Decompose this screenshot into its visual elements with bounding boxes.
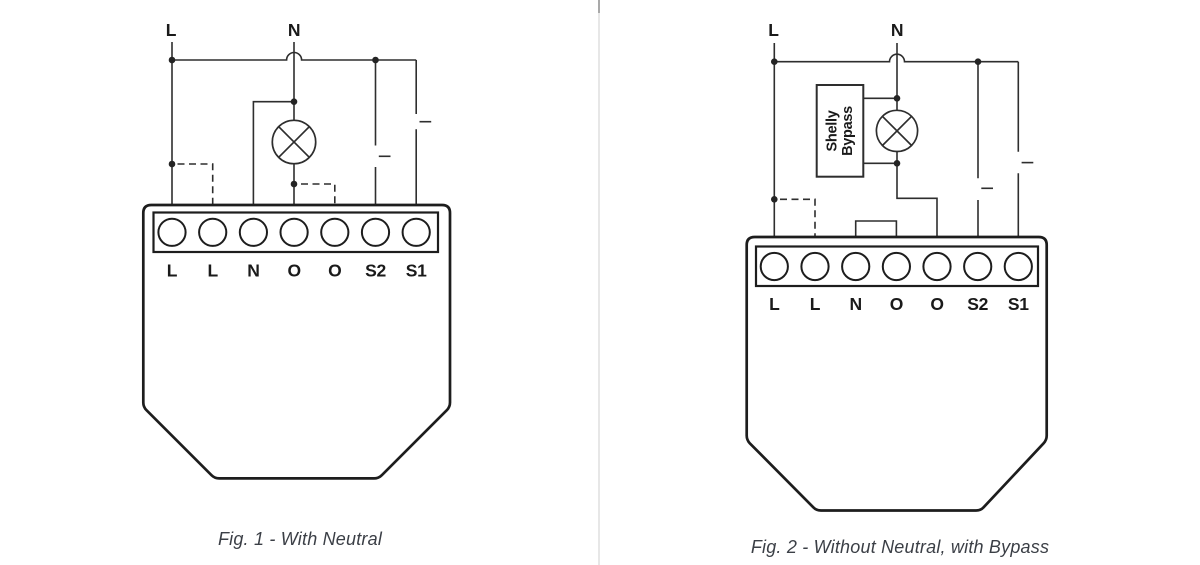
- terminal-hole: [362, 219, 389, 246]
- fig1-junction-dots: [169, 57, 379, 188]
- figure-1-caption: Fig. 1 - With Neutral: [0, 529, 600, 550]
- lamp-cross: [279, 127, 310, 158]
- terminal-label: O: [930, 294, 943, 314]
- terminal-hole: [801, 253, 828, 280]
- terminal-hole: [403, 219, 430, 246]
- supply-label-l: L: [166, 20, 177, 40]
- terminal-hole: [240, 219, 267, 246]
- terminal-hole: [199, 219, 226, 246]
- junction-dot: [291, 181, 298, 188]
- terminal-label: L: [769, 294, 780, 314]
- lamp-icon: [876, 110, 917, 151]
- terminal-label: S2: [365, 261, 386, 281]
- fig2-wires: [774, 43, 1033, 237]
- neutral-branch-wire: [253, 102, 294, 205]
- figure-2-caption: Fig. 2 - Without Neutral, with Bypass: [600, 537, 1200, 558]
- junction-dot: [771, 196, 778, 203]
- terminal-hole: [321, 219, 348, 246]
- switch-s2-icon: [978, 62, 993, 237]
- figure-1-diagram: L N L L N O O S2 S1: [0, 0, 600, 565]
- switch-s1-icon: [1018, 62, 1033, 237]
- terminal-hole: [1005, 253, 1032, 280]
- junction-dot: [771, 58, 778, 65]
- terminal-bridge-wire: [856, 221, 897, 237]
- junction-dot: [169, 161, 176, 168]
- switch-s1-icon: [416, 60, 431, 205]
- terminal-label: L: [810, 294, 821, 314]
- terminal-label: O: [328, 261, 341, 281]
- terminal-label: L: [208, 261, 219, 281]
- figure-2-diagram: L N Shelly Bypass L L N O O S2 S1: [600, 0, 1200, 565]
- dashed-live-terminal-wire: [780, 199, 815, 236]
- terminal-label: L: [167, 261, 178, 281]
- fig2-dashed-wires: [780, 199, 815, 236]
- switch-s2-icon: [376, 60, 391, 205]
- terminal-hole: [761, 253, 788, 280]
- terminal-label: S2: [967, 294, 988, 314]
- junction-dot: [894, 95, 901, 102]
- terminal-hole: [281, 219, 308, 246]
- supply-label-l: L: [768, 20, 779, 40]
- terminal-label: S1: [406, 261, 427, 281]
- supply-label-n: N: [288, 20, 300, 40]
- terminal-hole: [923, 253, 950, 280]
- terminal-label: N: [247, 261, 259, 281]
- terminal-hole: [158, 219, 185, 246]
- terminal-label: O: [287, 261, 300, 281]
- junction-dot: [372, 57, 379, 64]
- relay-device: [747, 237, 1047, 511]
- supply-label-n: N: [891, 20, 903, 40]
- terminal-hole: [883, 253, 910, 280]
- bypass-label-line1: Shelly: [825, 110, 841, 151]
- junction-dot: [975, 58, 982, 65]
- junction-dot: [894, 160, 901, 167]
- fig1-dashed-wires: [178, 164, 335, 204]
- dashed-live-terminal-wire: [178, 164, 213, 204]
- wiring-diagram-page: L N L L N O O S2 S1 Fig. 1 - With Neutra…: [0, 0, 1200, 565]
- bypass-label-line2: Bypass: [840, 106, 856, 156]
- terminal-hole: [842, 253, 869, 280]
- terminal-hole: [964, 253, 991, 280]
- terminal-label: S1: [1008, 294, 1029, 314]
- lamp-cross: [882, 116, 911, 145]
- lamp-icon: [272, 120, 315, 163]
- panel-divider-tick: [598, 0, 600, 13]
- figure-1-panel: L N L L N O O S2 S1 Fig. 1 - With Neutra…: [0, 0, 600, 565]
- figure-2-panel: L N Shelly Bypass L L N O O S2 S1 Fig. 2…: [600, 0, 1200, 565]
- junction-dot: [291, 98, 298, 105]
- lamp-output-wire: [897, 152, 937, 238]
- terminal-label: O: [890, 294, 903, 314]
- terminal-label: N: [850, 294, 862, 314]
- junction-dot: [169, 57, 176, 64]
- dashed-output-terminal-wire: [301, 184, 335, 204]
- relay-device: [143, 205, 450, 478]
- fig1-wires: [172, 42, 431, 205]
- panel-divider: [598, 0, 600, 565]
